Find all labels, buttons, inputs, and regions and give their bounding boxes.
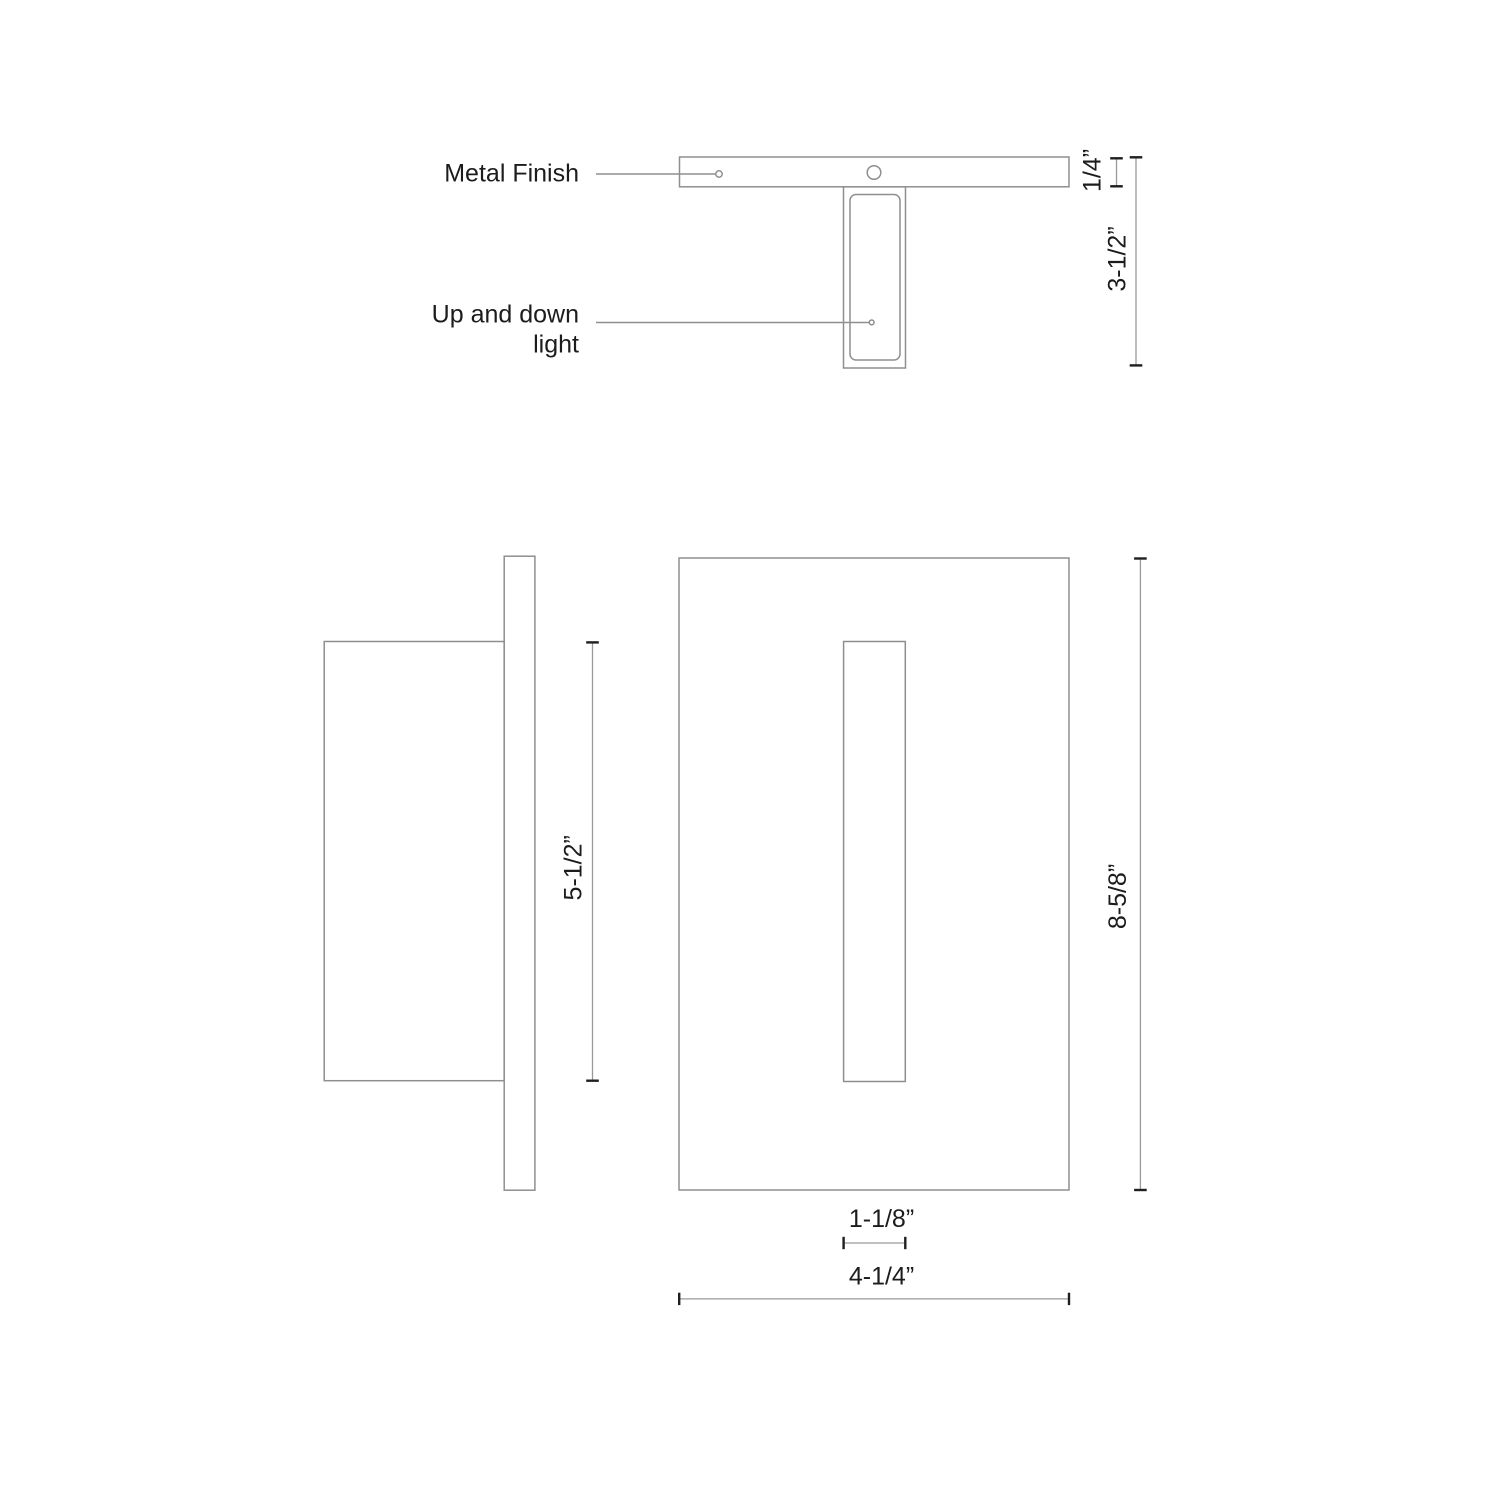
svg-text:8-5/8”: 8-5/8” (1104, 864, 1132, 929)
svg-text:3-1/2”: 3-1/2” (1104, 226, 1132, 291)
svg-text:Up and down: Up and down (432, 300, 579, 328)
svg-text:light: light (533, 330, 579, 358)
svg-text:Metal Finish: Metal Finish (444, 160, 579, 188)
svg-text:4-1/4”: 4-1/4” (849, 1263, 914, 1291)
svg-text:5-1/2”: 5-1/2” (560, 835, 588, 900)
svg-text:1/4”: 1/4” (1079, 149, 1107, 192)
svg-text:1-1/8”: 1-1/8” (849, 1205, 914, 1233)
